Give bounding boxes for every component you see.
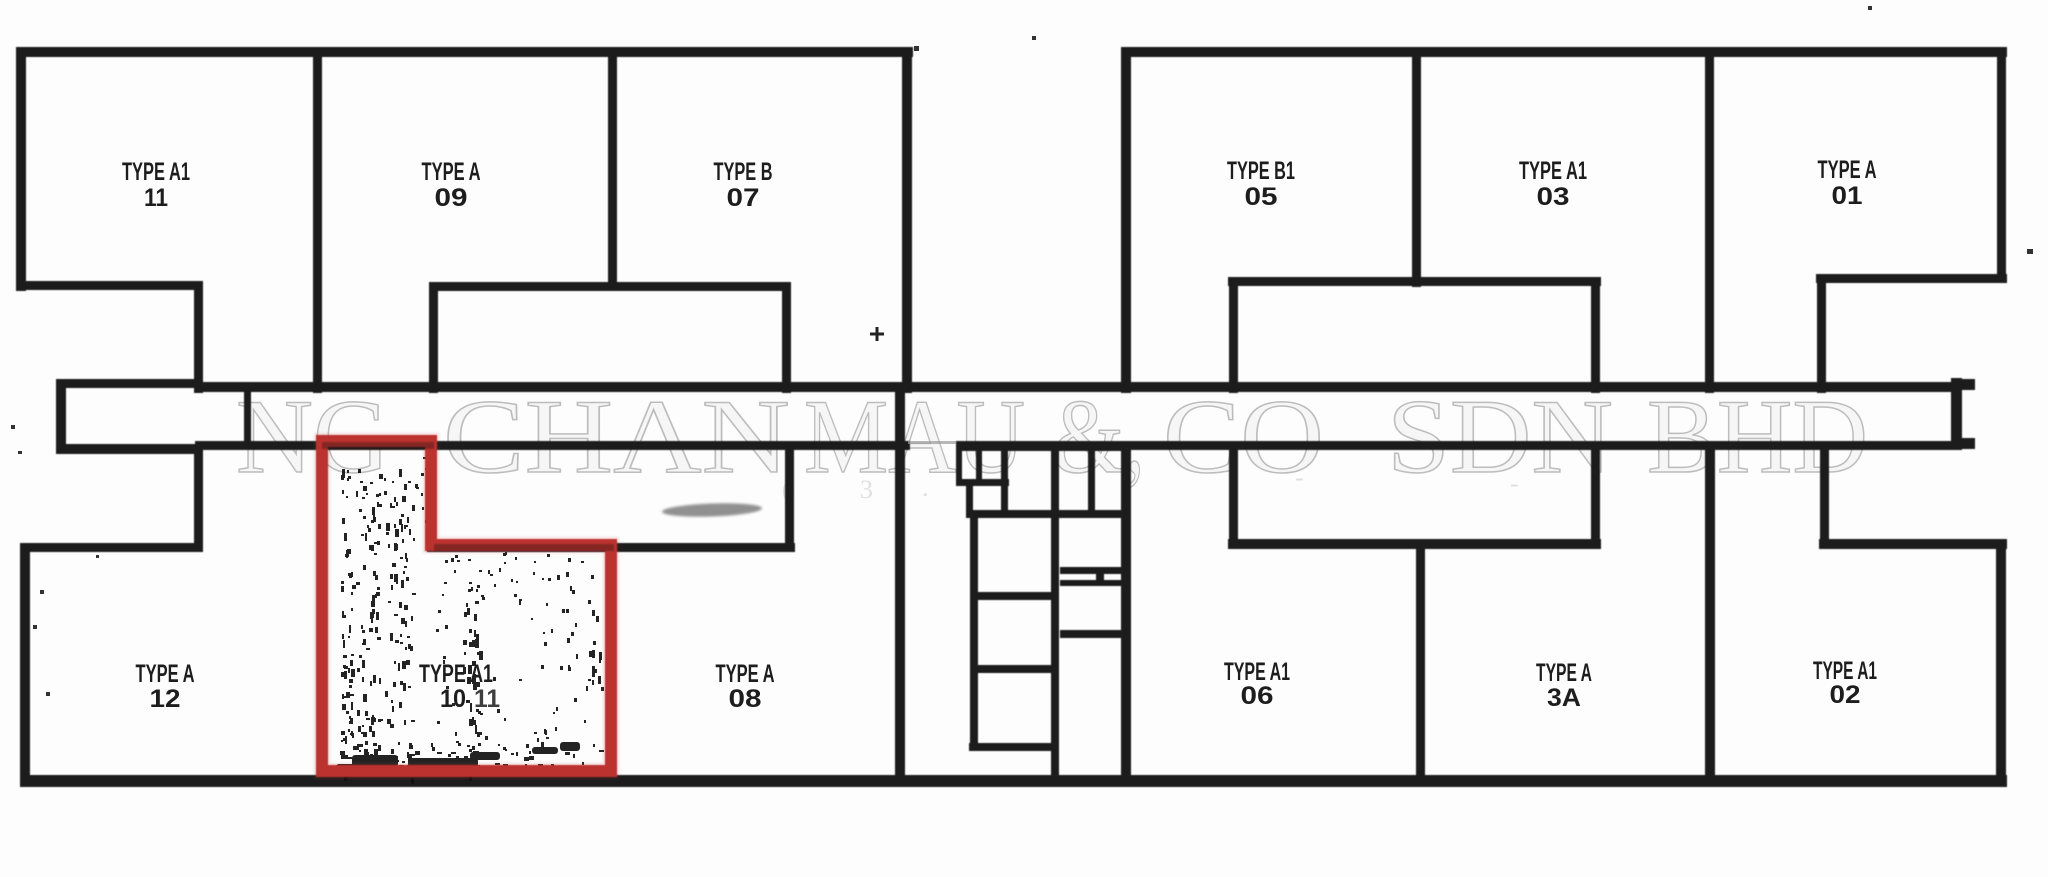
svg-text:12: 12 [150, 685, 181, 713]
svg-text:02: 02 [1830, 681, 1861, 709]
svg-text:-: - [1510, 469, 1519, 498]
svg-text:TYPE A1: TYPE A1 [122, 158, 190, 186]
svg-text:SDN: SDN [1387, 378, 1613, 495]
svg-text:05: 05 [1245, 183, 1278, 211]
svg-text:BHD: BHD [1647, 378, 1868, 495]
svg-text:CHAN: CHAN [443, 378, 790, 495]
svg-text:TYPE A: TYPE A [136, 660, 195, 688]
svg-text:11: 11 [474, 685, 500, 713]
svg-text:TYPE A: TYPE A [1818, 156, 1877, 184]
svg-text:TYPE A: TYPE A [716, 660, 775, 688]
svg-text:TYPE A1: TYPE A1 [1519, 157, 1587, 185]
svg-text:03: 03 [1537, 183, 1570, 211]
svg-text:TYPE B1: TYPE B1 [1227, 157, 1295, 185]
svg-text:09: 09 [435, 184, 468, 212]
svg-text:10: 10 [440, 685, 466, 713]
svg-text:01: 01 [1832, 182, 1863, 210]
svg-text:06: 06 [1241, 682, 1274, 710]
svg-text:11: 11 [144, 184, 168, 212]
svg-text:3: 3 [860, 475, 873, 504]
svg-text:08: 08 [729, 685, 762, 713]
svg-text:-: - [1295, 463, 1304, 492]
svg-text:TYPE A: TYPE A [1536, 659, 1592, 687]
svg-text:07: 07 [727, 184, 760, 212]
svg-text:MAU: MAU [804, 378, 1025, 495]
svg-text:.: . [922, 473, 929, 502]
svg-text:TYPE B: TYPE B [714, 158, 773, 186]
svg-text:TYPE A1: TYPE A1 [419, 660, 493, 688]
svg-text:3A: 3A [1547, 684, 1581, 712]
svg-text:TYPE A: TYPE A [422, 158, 481, 186]
